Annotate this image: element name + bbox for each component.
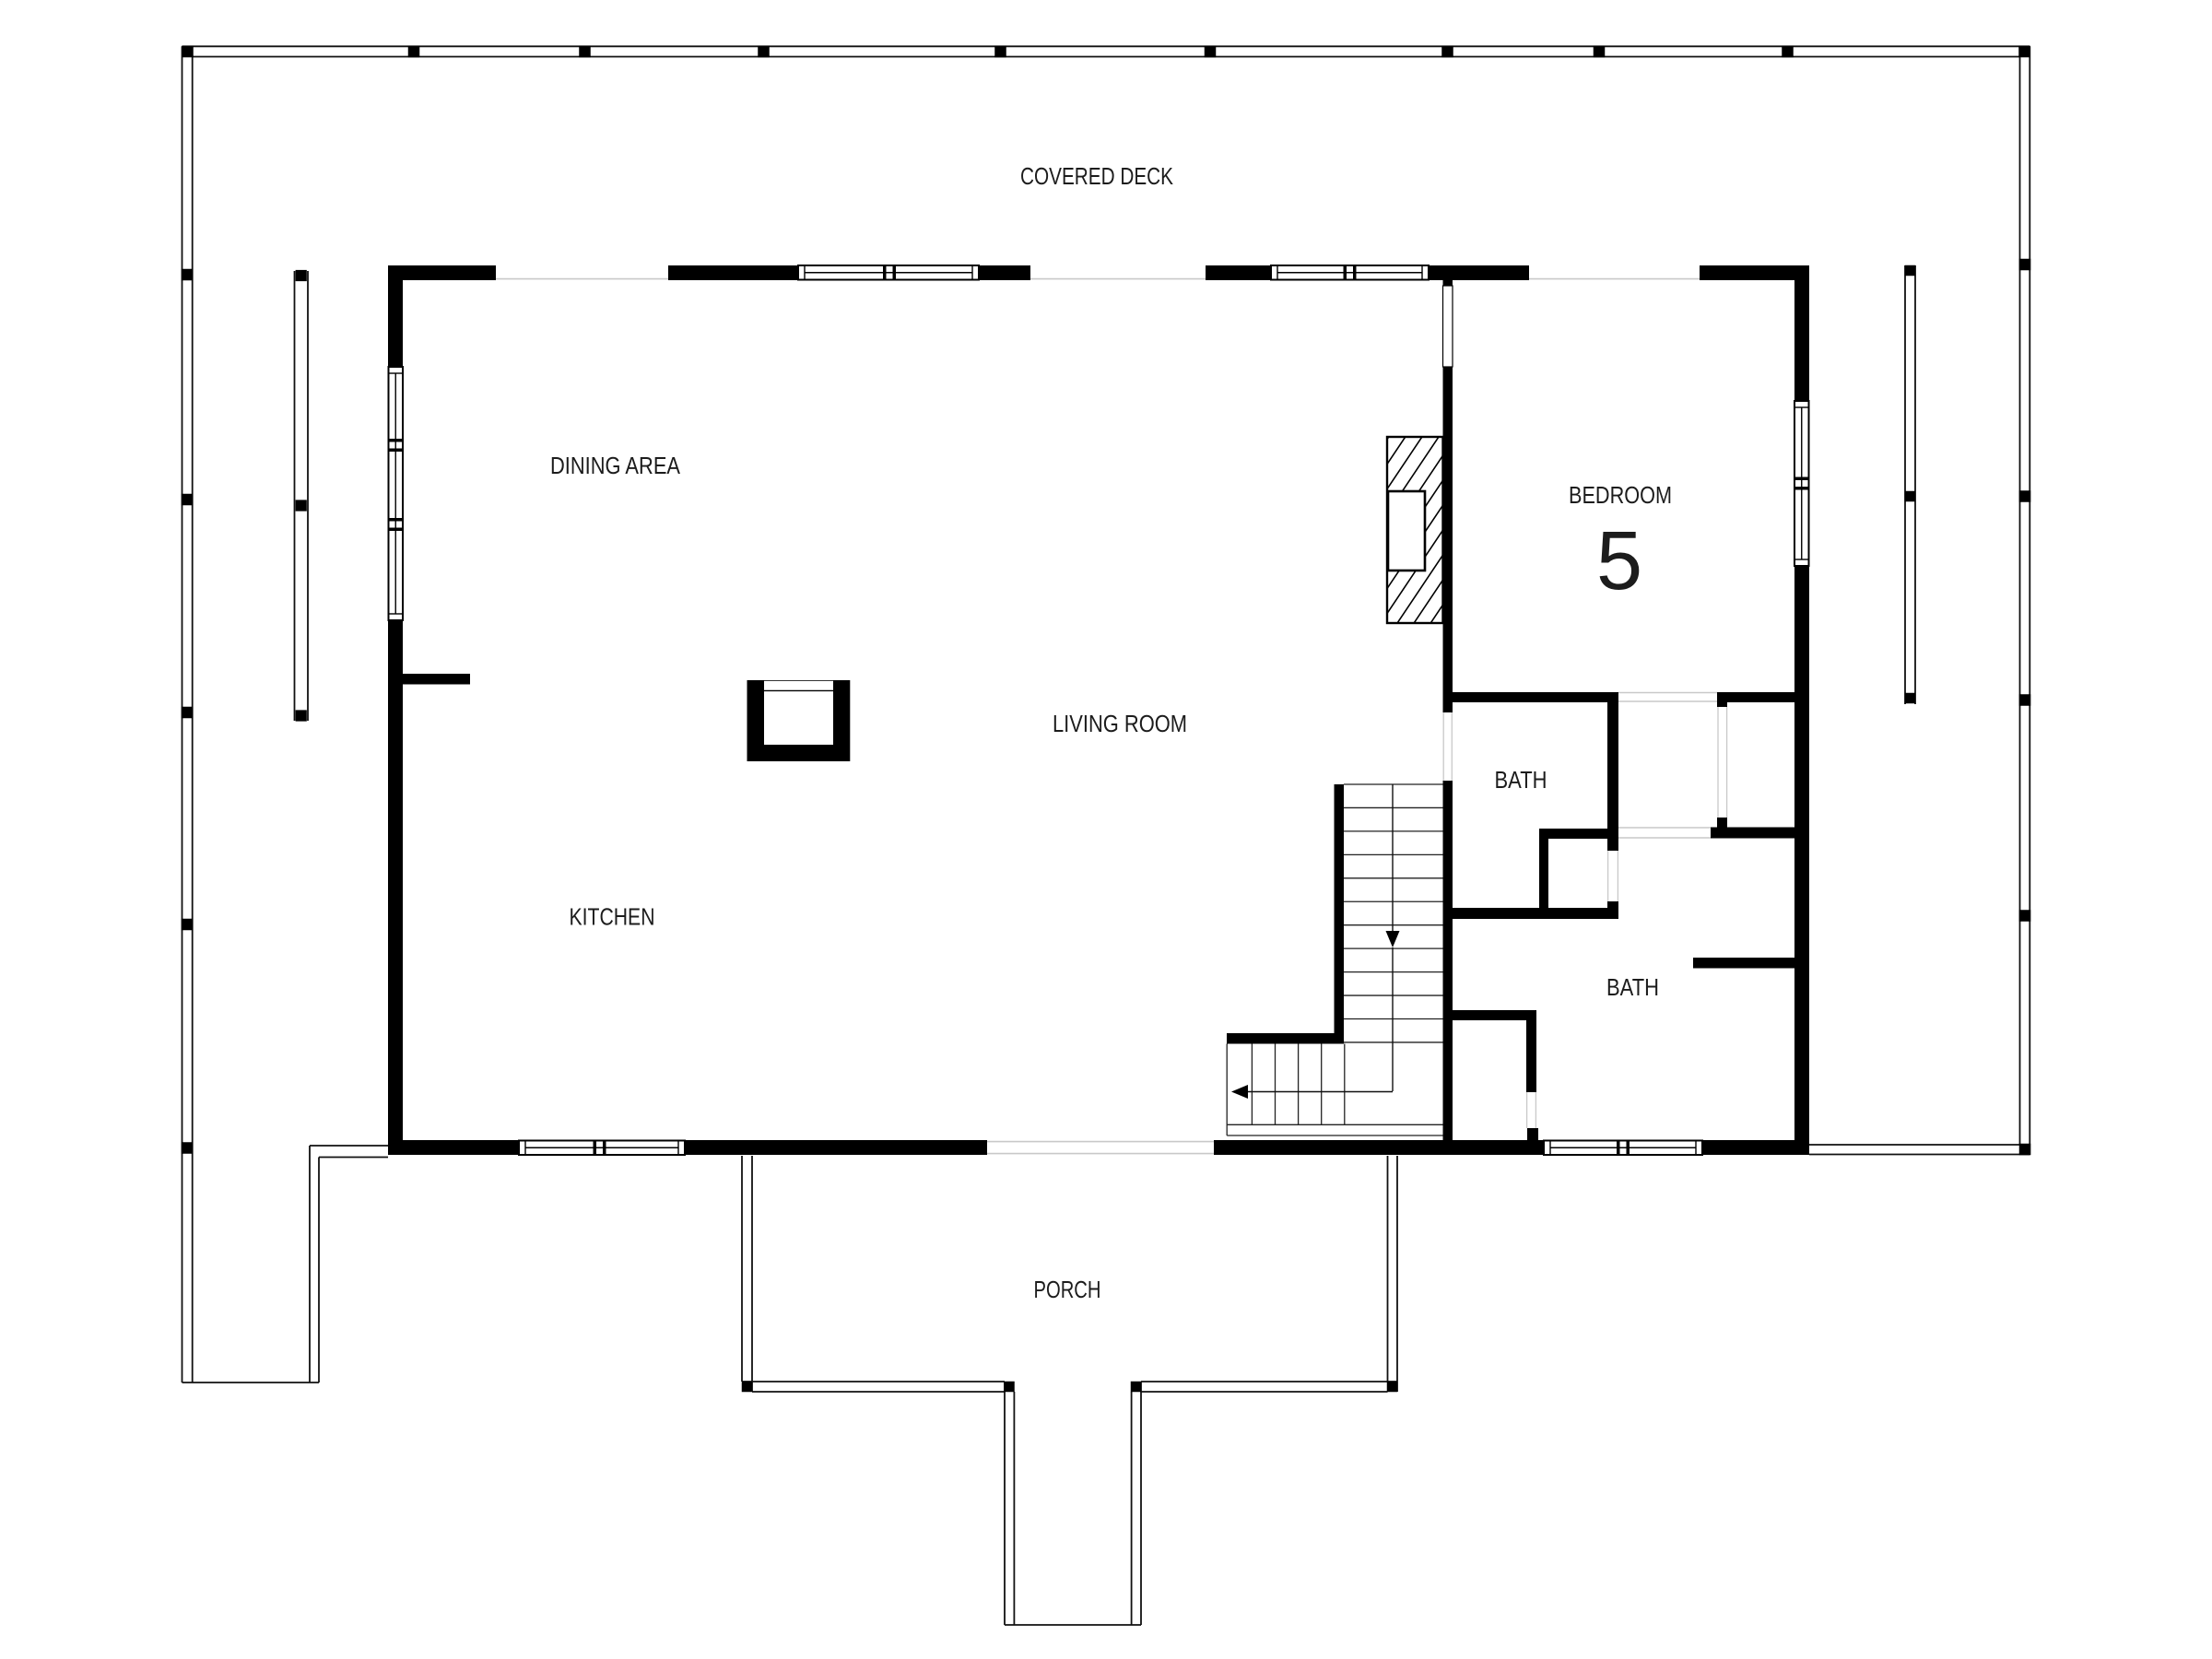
svg-text:COVERED DECK: COVERED DECK <box>1020 162 1174 190</box>
svg-text:DINING AREA: DINING AREA <box>550 452 681 479</box>
svg-text:KITCHEN: KITCHEN <box>570 903 655 931</box>
svg-text:LIVING ROOM: LIVING ROOM <box>1053 710 1187 737</box>
svg-text:BATH: BATH <box>1495 766 1547 794</box>
svg-text:BEDROOM: BEDROOM <box>1569 481 1672 509</box>
svg-text:BATH: BATH <box>1606 973 1659 1001</box>
svg-text:PORCH: PORCH <box>1034 1276 1101 1303</box>
svg-text:5: 5 <box>1596 515 1642 607</box>
